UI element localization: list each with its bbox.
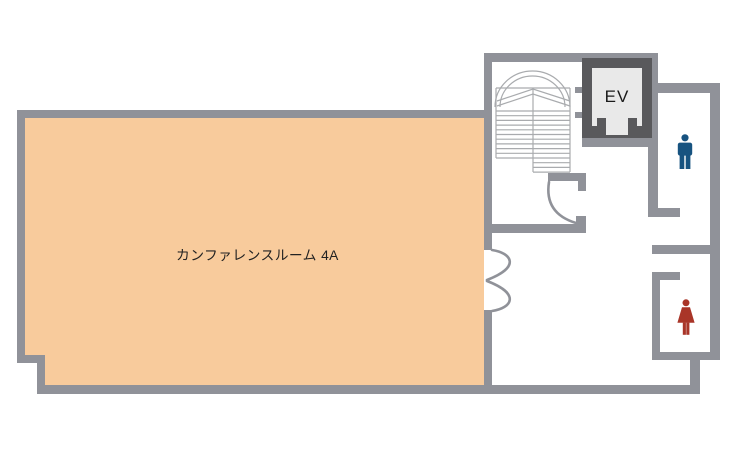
elevator-door-tab [606, 118, 628, 135]
wall-segment [17, 355, 45, 363]
wall-segment [652, 245, 720, 254]
wall-segment [710, 83, 720, 360]
wall-segment [37, 385, 700, 394]
wall-segment [690, 352, 700, 394]
conference-room-label: カンファレンスルーム 4A [176, 248, 339, 263]
conference-door-swing-icon [487, 281, 510, 311]
conference-door-swing-icon [487, 250, 510, 280]
wall-segment [652, 352, 720, 360]
stairwell-door-leaf [548, 173, 586, 181]
wall-segment [17, 110, 492, 118]
elevator-label: EV [605, 87, 630, 106]
doors [487, 173, 586, 311]
male-icon [678, 134, 692, 169]
floor-plan: EV カンファレンスルーム 4A [0, 0, 740, 452]
wall-segment [484, 110, 492, 250]
elevator: EV [582, 58, 652, 138]
wall-segment [17, 110, 25, 363]
stair-rail-stub [575, 87, 582, 93]
stairwell-door-swing-icon [548, 182, 576, 223]
wall-segment [648, 208, 680, 217]
stairs-icon [495, 71, 570, 172]
wall-segment [484, 62, 492, 110]
wall-segment [582, 138, 658, 147]
wall-segment [484, 310, 492, 394]
wall-segment [576, 216, 586, 233]
elevator-door-tab [637, 118, 642, 126]
wall-segment [652, 272, 660, 360]
elevator-door-tab [592, 118, 597, 126]
wall-segment [492, 224, 578, 233]
female-icon [677, 299, 694, 335]
stairwell-door-leaf [578, 181, 586, 191]
wall-segment [652, 272, 680, 280]
stair-rail-stub [575, 112, 582, 118]
